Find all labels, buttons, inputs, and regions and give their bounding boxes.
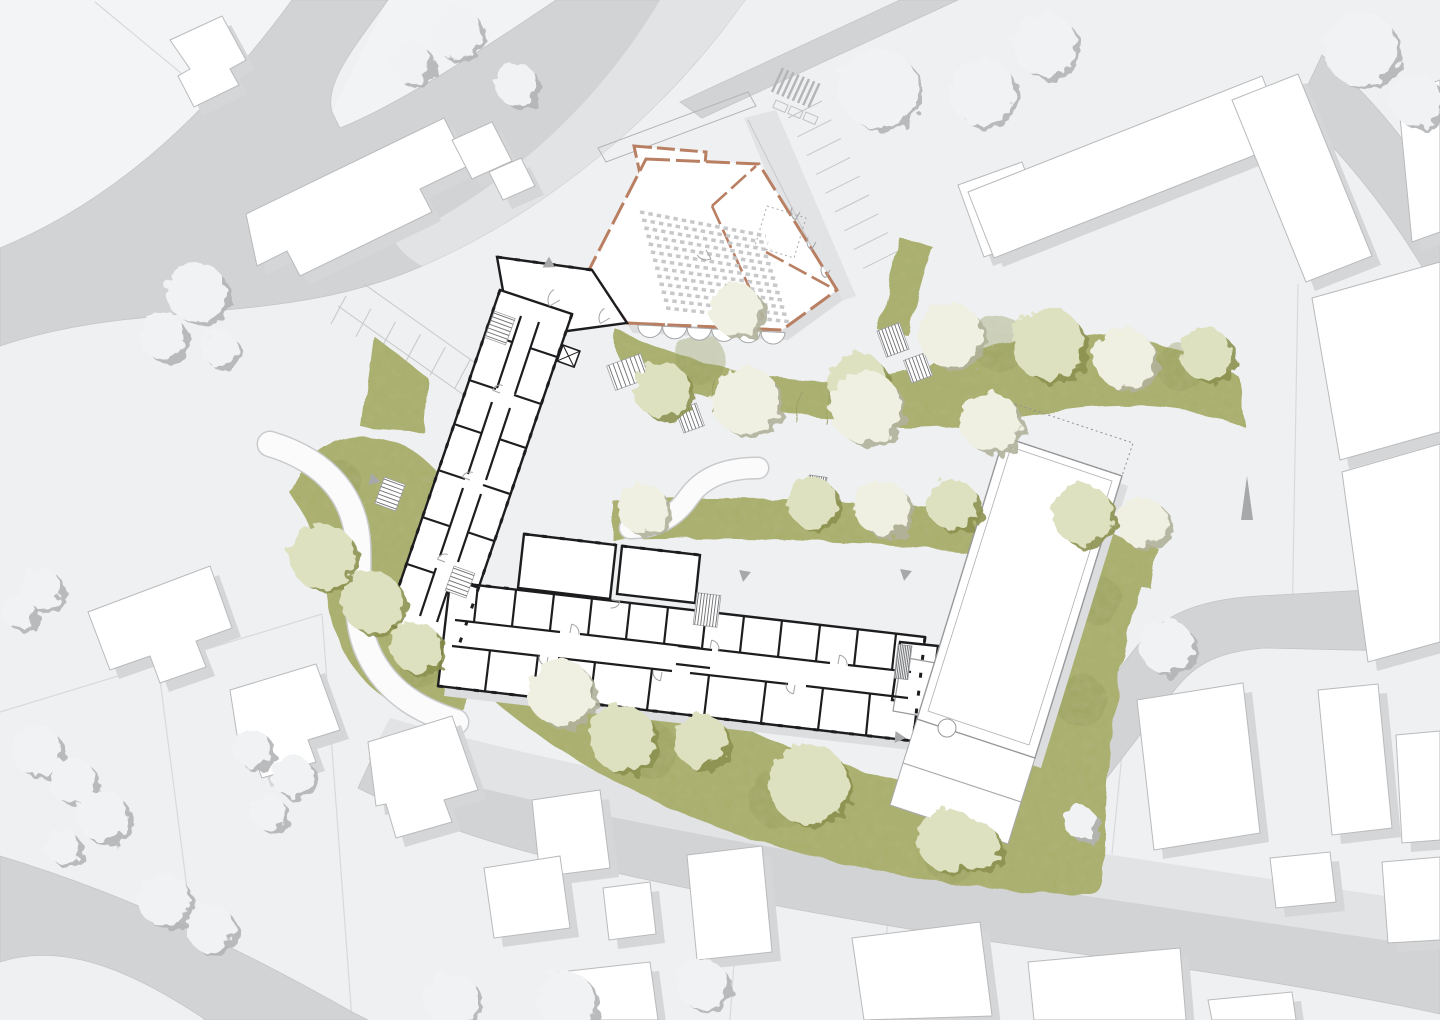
tree-icon bbox=[138, 874, 190, 926]
stair-icon bbox=[693, 593, 721, 628]
tree-icon bbox=[289, 523, 355, 589]
tree-icon bbox=[949, 59, 1015, 125]
building-footprint bbox=[1028, 948, 1186, 1020]
entrance-arrow-icon bbox=[737, 570, 751, 583]
building-footprint bbox=[484, 856, 570, 938]
bike-rack-icon bbox=[808, 83, 819, 107]
tree-icon bbox=[271, 755, 313, 797]
tree-icon bbox=[139, 313, 185, 359]
tree-icon bbox=[855, 481, 909, 535]
building-footprint bbox=[1270, 852, 1336, 908]
tree-icon bbox=[710, 284, 762, 336]
parking-stall-divider bbox=[835, 195, 869, 212]
parking-stall-divider bbox=[854, 233, 888, 250]
tree-icon bbox=[389, 41, 431, 83]
tree-icon bbox=[838, 48, 918, 128]
parking-stall-divider bbox=[826, 176, 860, 193]
parking-stall-divider bbox=[797, 120, 831, 137]
building-footprint bbox=[1382, 857, 1440, 943]
tree-icon bbox=[1012, 308, 1084, 380]
tree-icon bbox=[341, 571, 403, 633]
bike-rack-icon bbox=[793, 77, 804, 101]
tree-icon bbox=[1180, 328, 1232, 380]
tree-icon bbox=[527, 659, 593, 725]
tree-icon bbox=[673, 713, 727, 767]
tree-icon bbox=[918, 303, 982, 367]
bike-rack-icon bbox=[803, 81, 814, 105]
green-area bbox=[362, 336, 428, 432]
tree-icon bbox=[425, 973, 479, 1020]
site-plan-canvas bbox=[0, 0, 1440, 1020]
building-footprint bbox=[1208, 992, 1296, 1020]
parcel-line bbox=[322, 614, 352, 1020]
tree-icon bbox=[617, 483, 667, 533]
tree-icon bbox=[634, 362, 690, 418]
parcel-line bbox=[1292, 284, 1298, 632]
parking-stall-divider bbox=[816, 157, 850, 174]
tree-icon bbox=[251, 795, 285, 829]
north-arrow-icon bbox=[1241, 476, 1253, 520]
tree-icon bbox=[495, 63, 537, 105]
entrance-door-fan bbox=[637, 325, 662, 338]
tree-icon bbox=[200, 330, 236, 366]
tree-icon bbox=[1052, 484, 1112, 544]
new-building-volume bbox=[518, 534, 616, 599]
road bbox=[0, 856, 368, 1020]
tree-icon bbox=[76, 790, 128, 842]
new-building-volume bbox=[617, 546, 700, 603]
tree-icon bbox=[2, 596, 34, 628]
tree-icon bbox=[711, 366, 779, 434]
tree-icon bbox=[233, 729, 271, 767]
building-footprint bbox=[687, 846, 772, 960]
tree-icon bbox=[927, 479, 977, 529]
tree-icon bbox=[589, 705, 655, 771]
bike-box bbox=[803, 112, 818, 124]
tree-icon bbox=[677, 959, 727, 1009]
tree-icon bbox=[429, 6, 481, 58]
building-footprint bbox=[603, 882, 656, 940]
building-footprint bbox=[1312, 262, 1440, 460]
building-footprint bbox=[1396, 731, 1440, 843]
bike-rack-icon bbox=[798, 79, 809, 103]
tree-icon bbox=[768, 744, 848, 824]
tree-icon bbox=[787, 477, 837, 527]
tree-icon bbox=[1390, 74, 1440, 126]
entrance-door-fan bbox=[760, 331, 785, 344]
parking-stall-divider bbox=[430, 347, 445, 375]
parking-stall-divider bbox=[807, 139, 841, 156]
tree-icon bbox=[45, 829, 79, 863]
tree-icon bbox=[960, 392, 1020, 452]
tree-icon bbox=[1064, 806, 1096, 838]
tree-icon bbox=[952, 822, 1000, 870]
tree-icon bbox=[1012, 12, 1076, 76]
tree-icon bbox=[1117, 497, 1167, 547]
building-footprint bbox=[852, 922, 992, 1020]
parking-stall-divider bbox=[356, 309, 371, 337]
door-swing-arc bbox=[662, 326, 687, 339]
door-swing-arc bbox=[637, 325, 662, 338]
tree-icon bbox=[186, 904, 234, 952]
site-plan bbox=[0, 0, 1440, 1020]
tree-icon bbox=[391, 622, 441, 672]
parking-stall-divider bbox=[844, 214, 878, 231]
tree-icon bbox=[829, 371, 901, 443]
building-footprint bbox=[1137, 683, 1260, 850]
entrance-door-fan bbox=[662, 326, 687, 339]
tree-icon bbox=[1323, 11, 1397, 85]
tree-icon bbox=[1139, 619, 1193, 673]
round-skylight bbox=[938, 719, 956, 737]
parking-stall-divider bbox=[405, 334, 420, 362]
parking-stall-divider bbox=[863, 251, 897, 268]
tree-icon bbox=[166, 262, 226, 322]
entrance-arrow-icon bbox=[898, 569, 912, 582]
door-swing-arc bbox=[760, 331, 785, 344]
tree-icon bbox=[1094, 328, 1154, 388]
